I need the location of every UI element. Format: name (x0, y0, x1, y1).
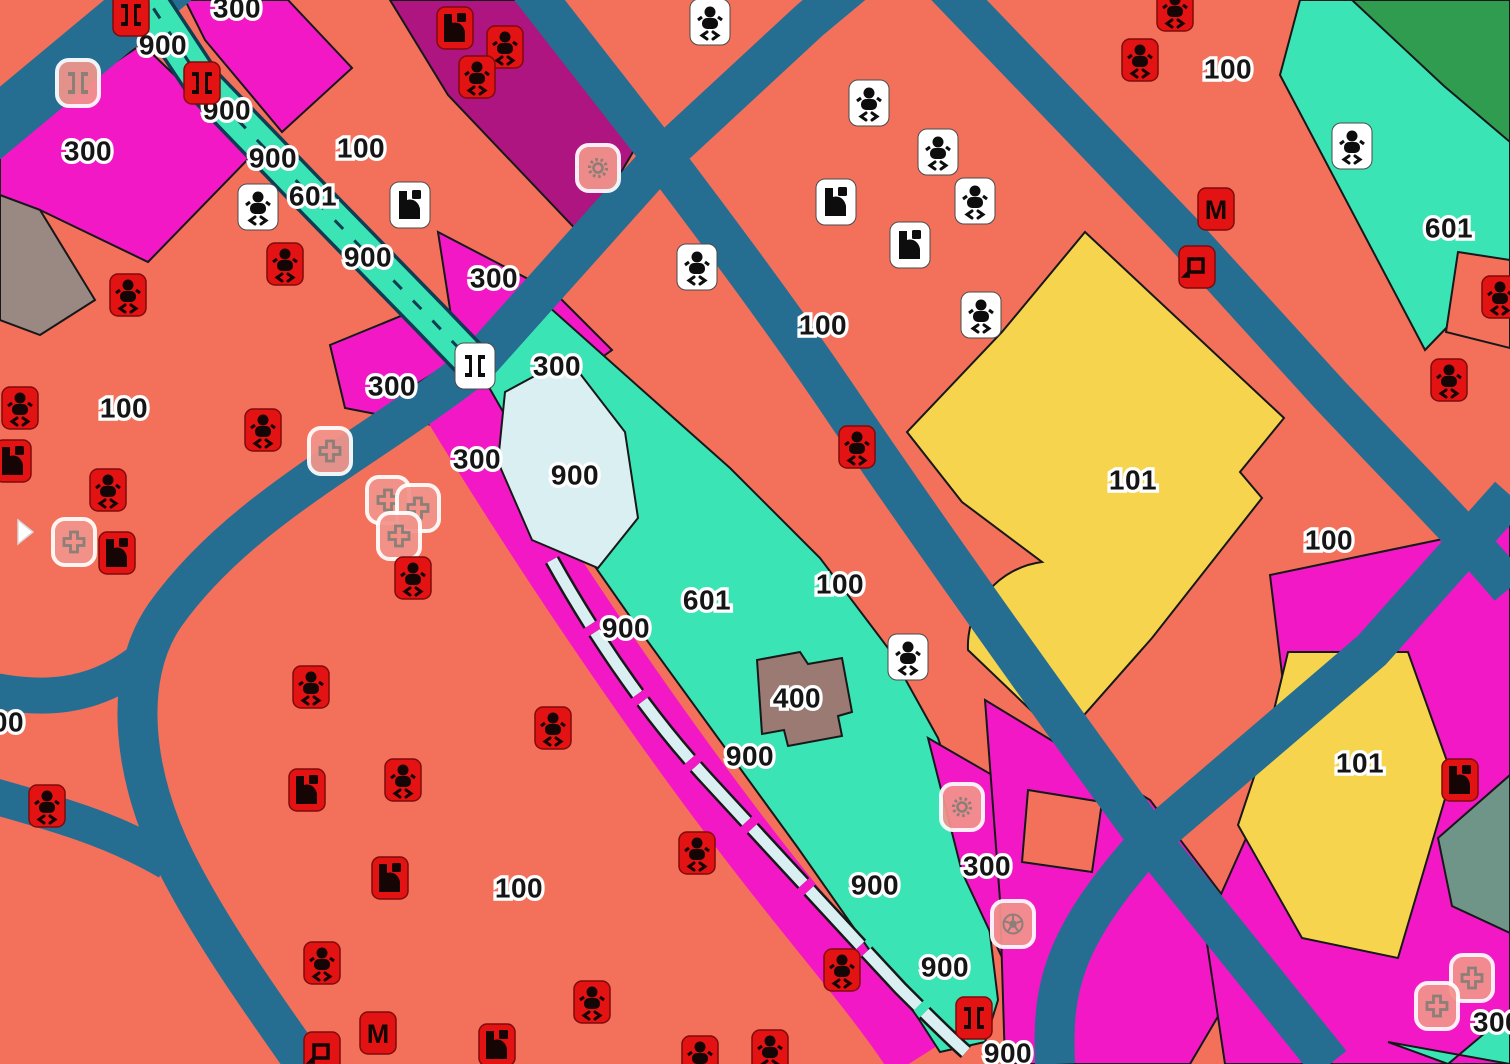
square-icon[interactable] (1179, 246, 1215, 288)
fitness-icon[interactable] (437, 7, 473, 49)
baby-icon[interactable] (888, 634, 928, 680)
zone-label: 300 (213, 0, 261, 24)
zone-label: 300 (470, 263, 518, 294)
zone-label: 900 (851, 870, 899, 901)
zone-label: 400 (773, 683, 821, 714)
baby-icon[interactable] (849, 80, 889, 126)
zone-label: 900 (344, 242, 392, 273)
zone-label: 100 (100, 393, 148, 424)
zone-label: 300 (533, 351, 581, 382)
baby-icon[interactable] (245, 409, 281, 451)
baby-icon[interactable] (918, 129, 958, 175)
baby-icon[interactable] (2, 387, 38, 429)
zoning-map: 3009009003009001006019003001001006013003… (0, 0, 1510, 1064)
baby-icon[interactable] (1122, 39, 1158, 81)
zone-label: 900 (921, 952, 969, 983)
fitness-icon[interactable] (372, 857, 408, 899)
baby-icon[interactable] (679, 832, 715, 874)
baby-icon[interactable] (839, 426, 875, 468)
cross-icon[interactable] (309, 428, 351, 474)
baby-icon[interactable] (238, 184, 278, 230)
baby-icon[interactable] (961, 292, 1001, 338)
zone-label: 101 (1336, 748, 1384, 779)
square-icon[interactable] (304, 1032, 340, 1064)
fitness-icon[interactable] (890, 222, 930, 268)
zone-label: 601 (683, 585, 731, 616)
baby-icon[interactable] (90, 469, 126, 511)
fitness-icon[interactable] (99, 532, 135, 574)
zone-label: 300 (453, 444, 501, 475)
baby-icon[interactable] (293, 666, 329, 708)
baby-icon[interactable] (574, 981, 610, 1023)
bridge-icon[interactable] (57, 60, 99, 106)
metro-icon[interactable]: M (1198, 188, 1234, 230)
baby-icon[interactable] (1482, 276, 1510, 318)
cross-icon[interactable] (378, 513, 420, 559)
zone-label: 900 (249, 143, 297, 174)
baby-icon[interactable] (385, 759, 421, 801)
baby-icon[interactable] (110, 274, 146, 316)
bridge-icon[interactable] (956, 997, 992, 1039)
baby-icon[interactable] (955, 178, 995, 224)
zone-label: 100 (1204, 54, 1252, 85)
zone-label: 900 (726, 741, 774, 772)
baby-icon[interactable] (29, 785, 65, 827)
bridge-icon[interactable] (184, 62, 220, 104)
fitness-icon[interactable] (0, 440, 31, 482)
zone-label: 900 (984, 1038, 1032, 1064)
ball-icon[interactable] (992, 901, 1034, 947)
baby-icon[interactable] (824, 949, 860, 991)
zone-label: 100 (1305, 525, 1353, 556)
zone-label: 100 (816, 569, 864, 600)
zone-label: 900 (602, 613, 650, 644)
fitness-icon[interactable] (1442, 759, 1478, 801)
zone-label: 00 (0, 707, 24, 738)
zone-label: 300 (64, 136, 112, 167)
cross-icon[interactable] (53, 519, 95, 565)
zone-label: 100 (337, 133, 385, 164)
zone-label: 601 (289, 181, 337, 212)
svg-text:M: M (1205, 195, 1228, 225)
baby-icon[interactable] (677, 244, 717, 290)
svg-text:M: M (367, 1019, 390, 1049)
fitness-icon[interactable] (390, 182, 430, 228)
fitness-icon[interactable] (479, 1024, 515, 1064)
fitness-icon[interactable] (289, 769, 325, 811)
baby-icon[interactable] (1431, 359, 1467, 401)
baby-icon[interactable] (535, 707, 571, 749)
baby-icon[interactable] (752, 1030, 788, 1064)
cross-icon[interactable] (1416, 983, 1458, 1029)
baby-icon[interactable] (304, 942, 340, 984)
zone-label: 900 (551, 460, 599, 491)
bridge-icon[interactable] (113, 0, 149, 36)
sun-icon[interactable] (941, 784, 983, 830)
baby-icon[interactable] (459, 56, 495, 98)
baby-icon[interactable] (690, 0, 730, 45)
baby-icon[interactable] (395, 557, 431, 599)
fitness-icon[interactable] (816, 179, 856, 225)
baby-icon[interactable] (1157, 0, 1193, 31)
zone-label: 300 (963, 851, 1011, 882)
zone-label: 601 (1425, 213, 1473, 244)
zone-label: 100 (495, 873, 543, 904)
zone-label: 300 (1473, 1007, 1510, 1038)
sun-icon[interactable] (577, 145, 619, 191)
baby-icon[interactable] (1332, 123, 1372, 169)
zone-label: 100 (799, 310, 847, 341)
baby-icon[interactable] (682, 1036, 718, 1064)
bridge-icon[interactable] (455, 343, 495, 389)
metro-icon[interactable]: M (360, 1012, 396, 1054)
map-canvas[interactable]: 3009009003009001006019003001001006013003… (0, 0, 1510, 1064)
zone-label: 101 (1109, 465, 1157, 496)
zone-label: 300 (368, 371, 416, 402)
baby-icon[interactable] (267, 243, 303, 285)
